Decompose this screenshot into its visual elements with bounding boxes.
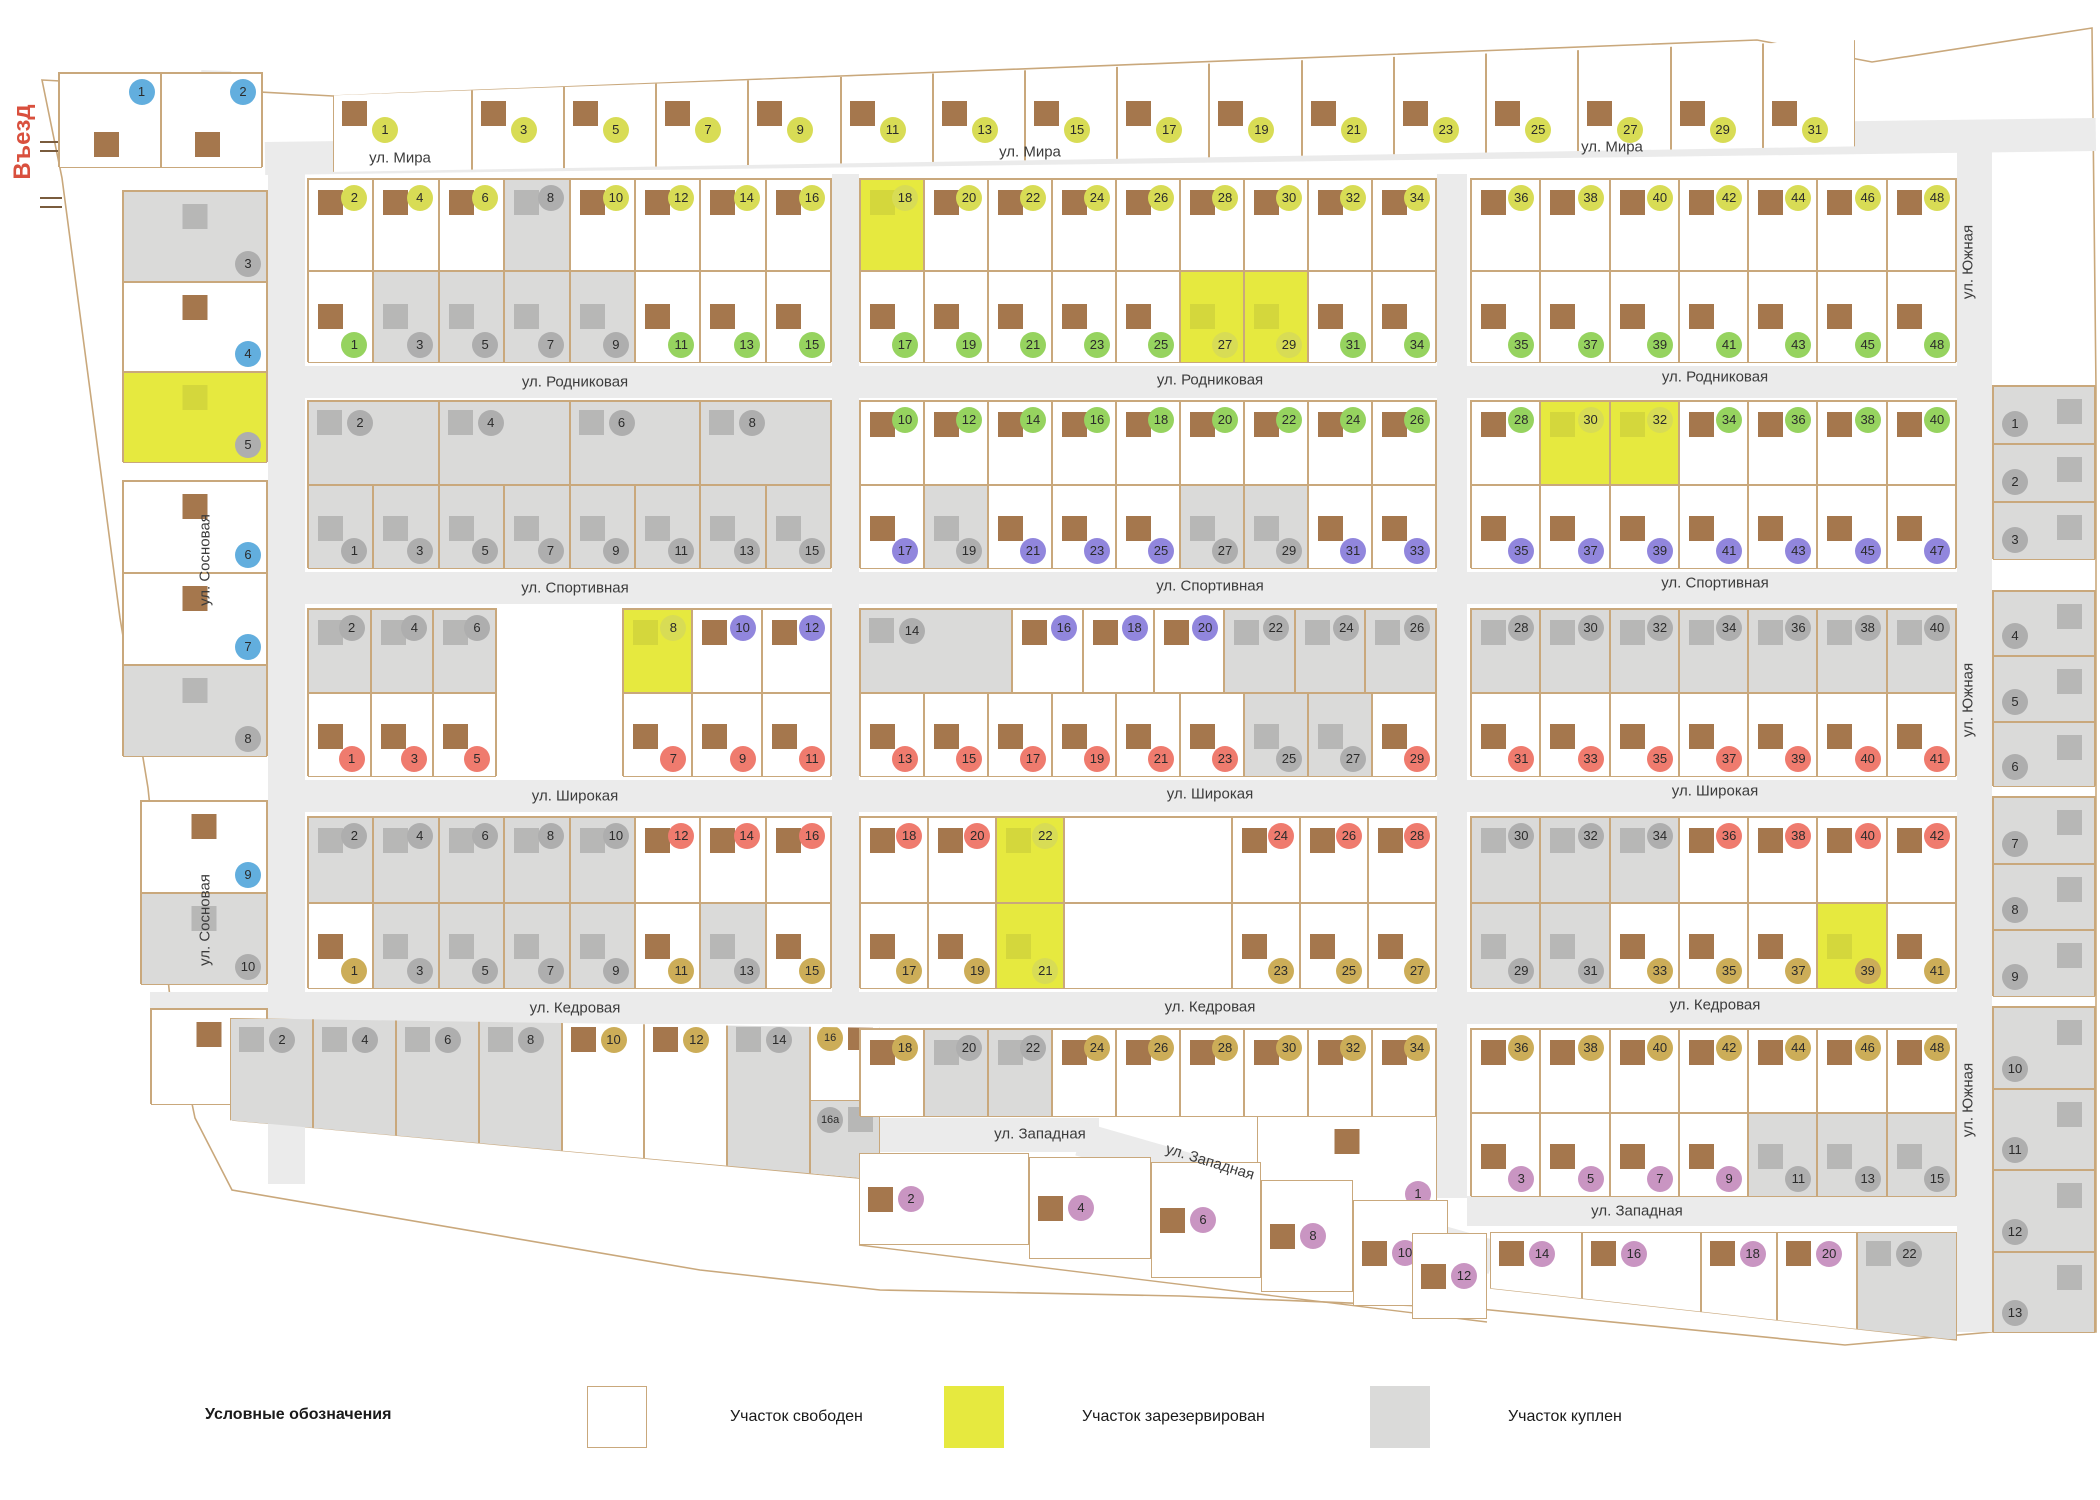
plot-24[interactable]: 24 [1232,817,1300,903]
plot-1[interactable]: 1 [59,73,161,168]
house-icon [1382,304,1407,329]
plot-37[interactable]: 37 [1540,271,1609,363]
plot-30[interactable]: 30 [1244,1029,1308,1117]
plot-34[interactable]: 34 [1679,609,1748,693]
plot-15[interactable]: 15 [924,693,988,777]
plot-20[interactable]: 20 [928,817,996,903]
plot-48[interactable]: 48 [1887,1029,1956,1113]
plot-26[interactable]: 26 [1116,1029,1180,1117]
plot-2[interactable]: 2 [161,73,263,168]
plot-28[interactable]: 28 [1180,179,1244,271]
plot-19[interactable]: 19 [924,271,988,363]
plot-number-badge: 26 [1336,823,1362,849]
block-yuzh-col-a: 123 [1992,385,2096,559]
plot-2[interactable]: 2 [308,817,373,903]
plot-2[interactable]: 2 [308,179,373,271]
plot-41[interactable]: 41 [1679,485,1748,569]
plot-10[interactable]: 10 [570,179,635,271]
plot-number-badge: 2 [341,823,367,849]
plot-25[interactable]: 25 [1300,903,1368,989]
plot-46[interactable]: 46 [1817,1029,1886,1113]
plot-9[interactable]: 9 [692,693,761,777]
plot-40[interactable]: 40 [1817,693,1886,777]
plot-18[interactable]: 18 [1701,1232,1777,1340]
plot-43[interactable]: 43 [1748,271,1817,363]
plot-40[interactable]: 40 [1887,609,1956,693]
house-icon [1758,1144,1783,1169]
plot-11[interactable]: 11 [762,693,831,777]
plot-25[interactable]: 25 [1116,485,1180,569]
plot-36[interactable]: 36 [1748,609,1817,693]
plot-24[interactable]: 24 [1052,179,1116,271]
house-icon [1254,190,1279,215]
plot-5[interactable]: 5 [439,485,504,569]
house-icon [1758,828,1783,853]
plot-44[interactable]: 44 [1748,179,1817,271]
plot-6[interactable]: 6 [570,401,701,485]
plot-43[interactable]: 43 [1748,485,1817,569]
plot-31[interactable]: 31 [1540,903,1609,989]
house-icon [405,1027,430,1052]
plot-38[interactable]: 38 [1540,179,1609,271]
plot-15[interactable]: 15 [1887,1113,1956,1197]
plot-8[interactable]: 8 [700,401,831,485]
house-icon [383,304,408,329]
plot-20[interactable]: 20 [924,179,988,271]
plot-21[interactable]: 21 [988,271,1052,363]
plot-18[interactable]: 18 [1083,609,1154,693]
plot-5[interactable]: 5 [123,372,267,463]
plot-35[interactable]: 35 [1471,271,1540,363]
plot-23[interactable]: 23 [1052,271,1116,363]
plot-33[interactable]: 33 [1372,485,1436,569]
plot-16[interactable]: 16 [1012,609,1083,693]
legend-swatch-purchased [1370,1386,1430,1448]
plot-12[interactable]: 12 [635,817,700,903]
plot-45[interactable]: 45 [1817,485,1886,569]
plot-1[interactable]: 1 [308,485,373,569]
plot-18[interactable]: 18 [860,179,924,271]
plot-39[interactable]: 39 [1610,271,1679,363]
plot-12[interactable]: 12 [1993,1170,2095,1252]
plot-6[interactable]: 6 [396,1018,479,1183]
plot-13[interactable]: 13 [1817,1113,1886,1197]
plot-6[interactable]: 6 [439,179,504,271]
house-icon [934,516,959,541]
plot-7[interactable]: 7 [504,485,569,569]
plot-8[interactable]: 8 [504,817,569,903]
plot-number-badge: 38 [1855,615,1881,641]
plot-5[interactable]: 5 [433,693,496,777]
plot-29[interactable]: 29 [1244,485,1308,569]
plot-8[interactable]: 8 [123,665,267,757]
legend-swatch-free [587,1386,647,1448]
plot-number-badge: 16 [1621,1241,1647,1267]
plot-9[interactable]: 9 [1993,930,2095,997]
zapadnaya-plot-12[interactable]: 12 [1412,1233,1487,1319]
plot-13[interactable]: 13 [700,485,765,569]
plot-34[interactable]: 34 [1610,817,1679,903]
plot-15[interactable]: 15 [766,903,831,989]
plot-19[interactable]: 19 [1209,36,1301,174]
plot-3[interactable]: 3 [373,485,438,569]
plot-4[interactable]: 4 [1993,591,2095,656]
plot-number-badge: 10 [603,823,629,849]
plot-16[interactable]: 16 [766,179,831,271]
plot-10[interactable]: 10 [692,609,761,693]
house-icon [443,724,468,749]
plot-38[interactable]: 38 [1748,817,1817,903]
plot-11[interactable]: 11 [635,271,700,363]
plot-36[interactable]: 36 [1471,179,1540,271]
plot-24[interactable]: 24 [1295,609,1366,693]
plot-number-badge: 32 [1340,185,1366,211]
house-icon [702,724,727,749]
plot-23[interactable]: 23 [1180,693,1244,777]
block-row: 12 [1993,1170,2095,1252]
street-label: ул. Сосновая [197,874,214,966]
plot-20[interactable]: 20 [924,1029,988,1117]
plot-33[interactable]: 33 [1540,693,1609,777]
plot-20[interactable]: 20 [1777,1232,1857,1340]
plot-3[interactable]: 3 [1471,1113,1540,1197]
plot-27[interactable]: 27 [1368,903,1436,989]
plot-3[interactable]: 3 [123,191,267,282]
plot-16[interactable]: 16 [766,817,831,903]
plot-4[interactable]: 4 [373,817,438,903]
plot-17[interactable]: 17 [860,903,928,989]
plot-19[interactable]: 19 [928,903,996,989]
plot-3[interactable]: 3 [373,271,438,363]
plot-30[interactable]: 30 [1471,817,1540,903]
house-icon [934,304,959,329]
house-icon [1897,304,1922,329]
house-icon [702,620,727,645]
plot-number-badge: 12 [799,615,825,641]
plot-23[interactable]: 23 [1232,903,1300,989]
plot-28[interactable]: 28 [1471,609,1540,693]
plot-4[interactable]: 4 [123,282,267,373]
plot-number-badge: 28 [1508,407,1534,433]
block-row: 2468 [308,401,831,485]
plot-27[interactable]: 27 [1308,693,1372,777]
plot-13[interactable]: 13 [860,693,924,777]
plot-34[interactable]: 34 [1372,1029,1436,1117]
plot-7[interactable]: 7 [1993,797,2095,864]
plot-46[interactable]: 46 [1817,179,1886,271]
plot-number-badge: 43 [1785,538,1811,564]
plot-28[interactable]: 28 [1471,401,1540,485]
plot-15[interactable]: 15 [766,271,831,363]
plot-2[interactable]: 2 [308,401,439,485]
zapadnaya-plot-8[interactable]: 8 [1261,1180,1353,1292]
plot-40[interactable]: 40 [1887,401,1956,485]
plot-47[interactable]: 47 [1887,485,1956,569]
plot-4[interactable]: 4 [371,609,434,693]
plot-32[interactable]: 32 [1308,179,1372,271]
plot-20[interactable]: 20 [1154,609,1225,693]
plot-35[interactable]: 35 [1679,903,1748,989]
plot-38[interactable]: 38 [1817,609,1886,693]
plot-11[interactable]: 11 [1993,1089,2095,1171]
plot-number-badge: 8 [739,410,765,436]
plot-11[interactable]: 11 [635,485,700,569]
plot-5[interactable]: 5 [1993,656,2095,721]
plot-39[interactable]: 39 [1748,693,1817,777]
plot-21[interactable]: 21 [996,903,1064,989]
plot-13[interactable]: 13 [1993,1252,2095,1334]
plot-9[interactable]: 9 [570,903,635,989]
plot-3[interactable]: 3 [371,693,434,777]
plot-11[interactable]: 11 [635,903,700,989]
plot-1[interactable]: 1 [308,903,373,989]
plot-6[interactable]: 6 [439,817,504,903]
plot-12[interactable]: 12 [762,609,831,693]
plot-21[interactable]: 21 [988,485,1052,569]
plot-7[interactable]: 7 [504,903,569,989]
plot-9[interactable]: 9 [570,485,635,569]
plot-32[interactable]: 32 [1610,401,1679,485]
plot-14[interactable]: 14 [700,179,765,271]
plot-36[interactable]: 36 [1471,1029,1540,1113]
plot-4[interactable]: 4 [313,1018,396,1183]
plot-35[interactable]: 35 [1471,485,1540,569]
plot-40[interactable]: 40 [1610,1029,1679,1113]
plot-29[interactable]: 29 [1372,693,1436,777]
plot-7[interactable]: 7 [1610,1113,1679,1197]
plot-34[interactable]: 34 [1372,179,1436,271]
plot-8[interactable]: 8 [1993,864,2095,931]
plot-45[interactable]: 45 [1817,271,1886,363]
house-icon [1190,190,1215,215]
house-icon [1897,828,1922,853]
house-icon [1786,1241,1811,1266]
plot-number-badge: 1 [341,958,367,984]
plot-17[interactable]: 17 [860,485,924,569]
plot-19[interactable]: 19 [924,485,988,569]
plot-14[interactable]: 14 [700,817,765,903]
plot-7[interactable]: 7 [623,693,692,777]
plot-1[interactable]: 1 [308,271,373,363]
plot-42[interactable]: 42 [1679,1029,1748,1113]
plot-14[interactable]: 14 [988,401,1052,485]
plot-10[interactable]: 10 [562,1018,645,1183]
plot-38[interactable]: 38 [1817,401,1886,485]
plot-25[interactable]: 25 [1244,693,1308,777]
plot-6[interactable]: 6 [123,481,267,573]
plot-22[interactable]: 22 [1244,401,1308,485]
house-icon [934,1040,959,1065]
plot-8[interactable]: 8 [479,1018,562,1183]
plot-8[interactable]: 8 [623,609,692,693]
plot-14[interactable]: 14 [860,609,1012,693]
house-icon [2057,669,2082,694]
plot-12[interactable]: 12 [644,1018,727,1183]
plot-number-badge: 14 [1020,407,1046,433]
plot-39[interactable]: 39 [1610,485,1679,569]
plot-17[interactable]: 17 [1117,36,1209,174]
plot-42[interactable]: 42 [1887,817,1956,903]
plot-22[interactable]: 22 [996,817,1064,903]
plot-16[interactable]: 16 [1582,1232,1701,1340]
plot-14[interactable]: 14 [1490,1232,1582,1340]
plot-22[interactable]: 22 [988,1029,1052,1117]
plot-3[interactable]: 3 [472,36,564,174]
plot-5[interactable]: 5 [1540,1113,1609,1197]
plot-10[interactable]: 10 [570,817,635,903]
plot-3[interactable]: 3 [373,903,438,989]
plot-22[interactable]: 22 [988,179,1052,271]
plot-37[interactable]: 37 [1679,693,1748,777]
plot-7[interactable]: 7 [504,271,569,363]
plot-26[interactable]: 26 [1372,401,1436,485]
plot-3[interactable]: 3 [1993,502,2095,560]
plot-21[interactable]: 21 [1116,693,1180,777]
plot-22[interactable]: 22 [1857,1232,1957,1340]
plot-24[interactable]: 24 [1308,401,1372,485]
house-icon [1827,1040,1852,1065]
plot-4[interactable]: 4 [439,401,570,485]
plot-5[interactable]: 5 [439,271,504,363]
plot-25[interactable]: 25 [1116,271,1180,363]
plot-14[interactable]: 14 [727,1018,810,1183]
plot-5[interactable]: 5 [564,36,656,174]
plot-37[interactable]: 37 [1748,903,1817,989]
plot-18[interactable]: 18 [1116,401,1180,485]
plot-13[interactable]: 13 [700,271,765,363]
plot-16[interactable]: 16 [1052,401,1116,485]
plot-39[interactable]: 39 [1817,903,1886,989]
plot-number-badge: 35 [1508,332,1534,358]
plot-40[interactable]: 40 [1817,817,1886,903]
zapadnaya-plot-4[interactable]: 4 [1029,1157,1151,1259]
plot-number-badge: 40 [1647,185,1673,211]
plot-number-badge: 35 [1508,538,1534,564]
plot-20[interactable]: 20 [1180,401,1244,485]
plot-28[interactable]: 28 [1368,817,1436,903]
plot-18[interactable]: 18 [860,1029,924,1117]
plot-34[interactable]: 34 [1679,401,1748,485]
plot-29[interactable]: 29 [1471,903,1540,989]
plot-11[interactable]: 11 [841,36,933,174]
plot-30[interactable]: 30 [1540,401,1609,485]
plot-31[interactable]: 31 [1471,693,1540,777]
plot-22[interactable]: 22 [1224,609,1295,693]
plot-number-badge: 9 [787,117,813,143]
plot-number-badge: 2 [339,615,365,641]
house-icon [1006,828,1031,853]
plot-38[interactable]: 38 [1540,1029,1609,1113]
plot-27[interactable]: 27 [1180,485,1244,569]
plot-41[interactable]: 41 [1887,903,1956,989]
house-icon [1758,412,1783,437]
plot-26[interactable]: 26 [1300,817,1368,903]
plot-29[interactable]: 29 [1244,271,1308,363]
house-icon [1254,412,1279,437]
plot-21[interactable]: 21 [1302,36,1394,174]
block-r1-left: 24681012141613579111315 [307,178,832,362]
plot-41[interactable]: 41 [1887,693,1956,777]
plot-32[interactable]: 32 [1610,609,1679,693]
plot-26[interactable]: 26 [1365,609,1436,693]
plot-48[interactable]: 48 [1887,271,1956,363]
plot-33[interactable]: 33 [1610,903,1679,989]
plot-18[interactable]: 18 [860,817,928,903]
plot-31[interactable]: 31 [1308,485,1372,569]
plot-15[interactable]: 15 [766,485,831,569]
house-icon [2057,943,2082,968]
plot-23[interactable]: 23 [1052,485,1116,569]
plot-17[interactable]: 17 [988,693,1052,777]
plot-number-badge: 6 [235,542,261,568]
plot-17[interactable]: 17 [860,271,924,363]
plot-41[interactable]: 41 [1679,271,1748,363]
plot-35[interactable]: 35 [1610,693,1679,777]
plot-32[interactable]: 32 [1308,1029,1372,1117]
plot-6[interactable]: 6 [1993,722,2095,787]
plot-8[interactable]: 8 [504,179,569,271]
plot-42[interactable]: 42 [1679,179,1748,271]
plot-28[interactable]: 28 [1180,1029,1244,1117]
block-r4-right: 3032343638404229313335373941 [1470,816,1957,988]
plot-34[interactable]: 34 [1372,271,1436,363]
plot-9[interactable]: 9 [748,36,840,174]
zapadnaya-plot-2[interactable]: 2 [859,1153,1029,1245]
house-icon [1710,1241,1735,1266]
plot-5[interactable]: 5 [439,903,504,989]
plot-27[interactable]: 27 [1180,271,1244,363]
plot-number-badge: 8 [538,185,564,211]
plot-number-badge: 29 [1404,746,1430,772]
plot-24[interactable]: 24 [1052,1029,1116,1117]
plot-31[interactable]: 31 [1308,271,1372,363]
plot-1[interactable]: 1 [308,693,371,777]
plot-number-badge: 20 [956,185,982,211]
plot-44[interactable]: 44 [1748,1029,1817,1113]
plot-number-badge: 16 [799,185,825,211]
plot-36[interactable]: 36 [1679,817,1748,903]
plot-10[interactable]: 10 [1993,1007,2095,1089]
plot-2[interactable]: 2 [1993,444,2095,502]
house-icon [1318,190,1343,215]
plot-12[interactable]: 12 [924,401,988,485]
plot-30[interactable]: 30 [1244,179,1308,271]
plot-37[interactable]: 37 [1540,485,1609,569]
plot-2[interactable]: 2 [308,609,371,693]
plot-48[interactable]: 48 [1887,179,1956,271]
plot-10[interactable]: 10 [860,401,924,485]
plot-40[interactable]: 40 [1610,179,1679,271]
plot-12[interactable]: 12 [635,179,700,271]
plot-number-badge: 28 [1508,615,1534,641]
plot-9[interactable]: 9 [1679,1113,1748,1197]
plot-4[interactable]: 4 [373,179,438,271]
plot-36[interactable]: 36 [1748,401,1817,485]
plot-6[interactable]: 6 [433,609,496,693]
street-label: ул. Западная [994,1126,1086,1143]
plot-7[interactable]: 7 [656,36,748,174]
plot-7[interactable]: 7 [123,573,267,665]
plot-26[interactable]: 26 [1116,179,1180,271]
plot-1[interactable]: 1 [1993,386,2095,444]
plot-30[interactable]: 30 [1540,609,1609,693]
plot-9[interactable]: 9 [570,271,635,363]
plot-19[interactable]: 19 [1052,693,1116,777]
plot-11[interactable]: 11 [1748,1113,1817,1197]
plot-13[interactable]: 13 [700,903,765,989]
house-icon [1382,1040,1407,1065]
plot-32[interactable]: 32 [1540,817,1609,903]
